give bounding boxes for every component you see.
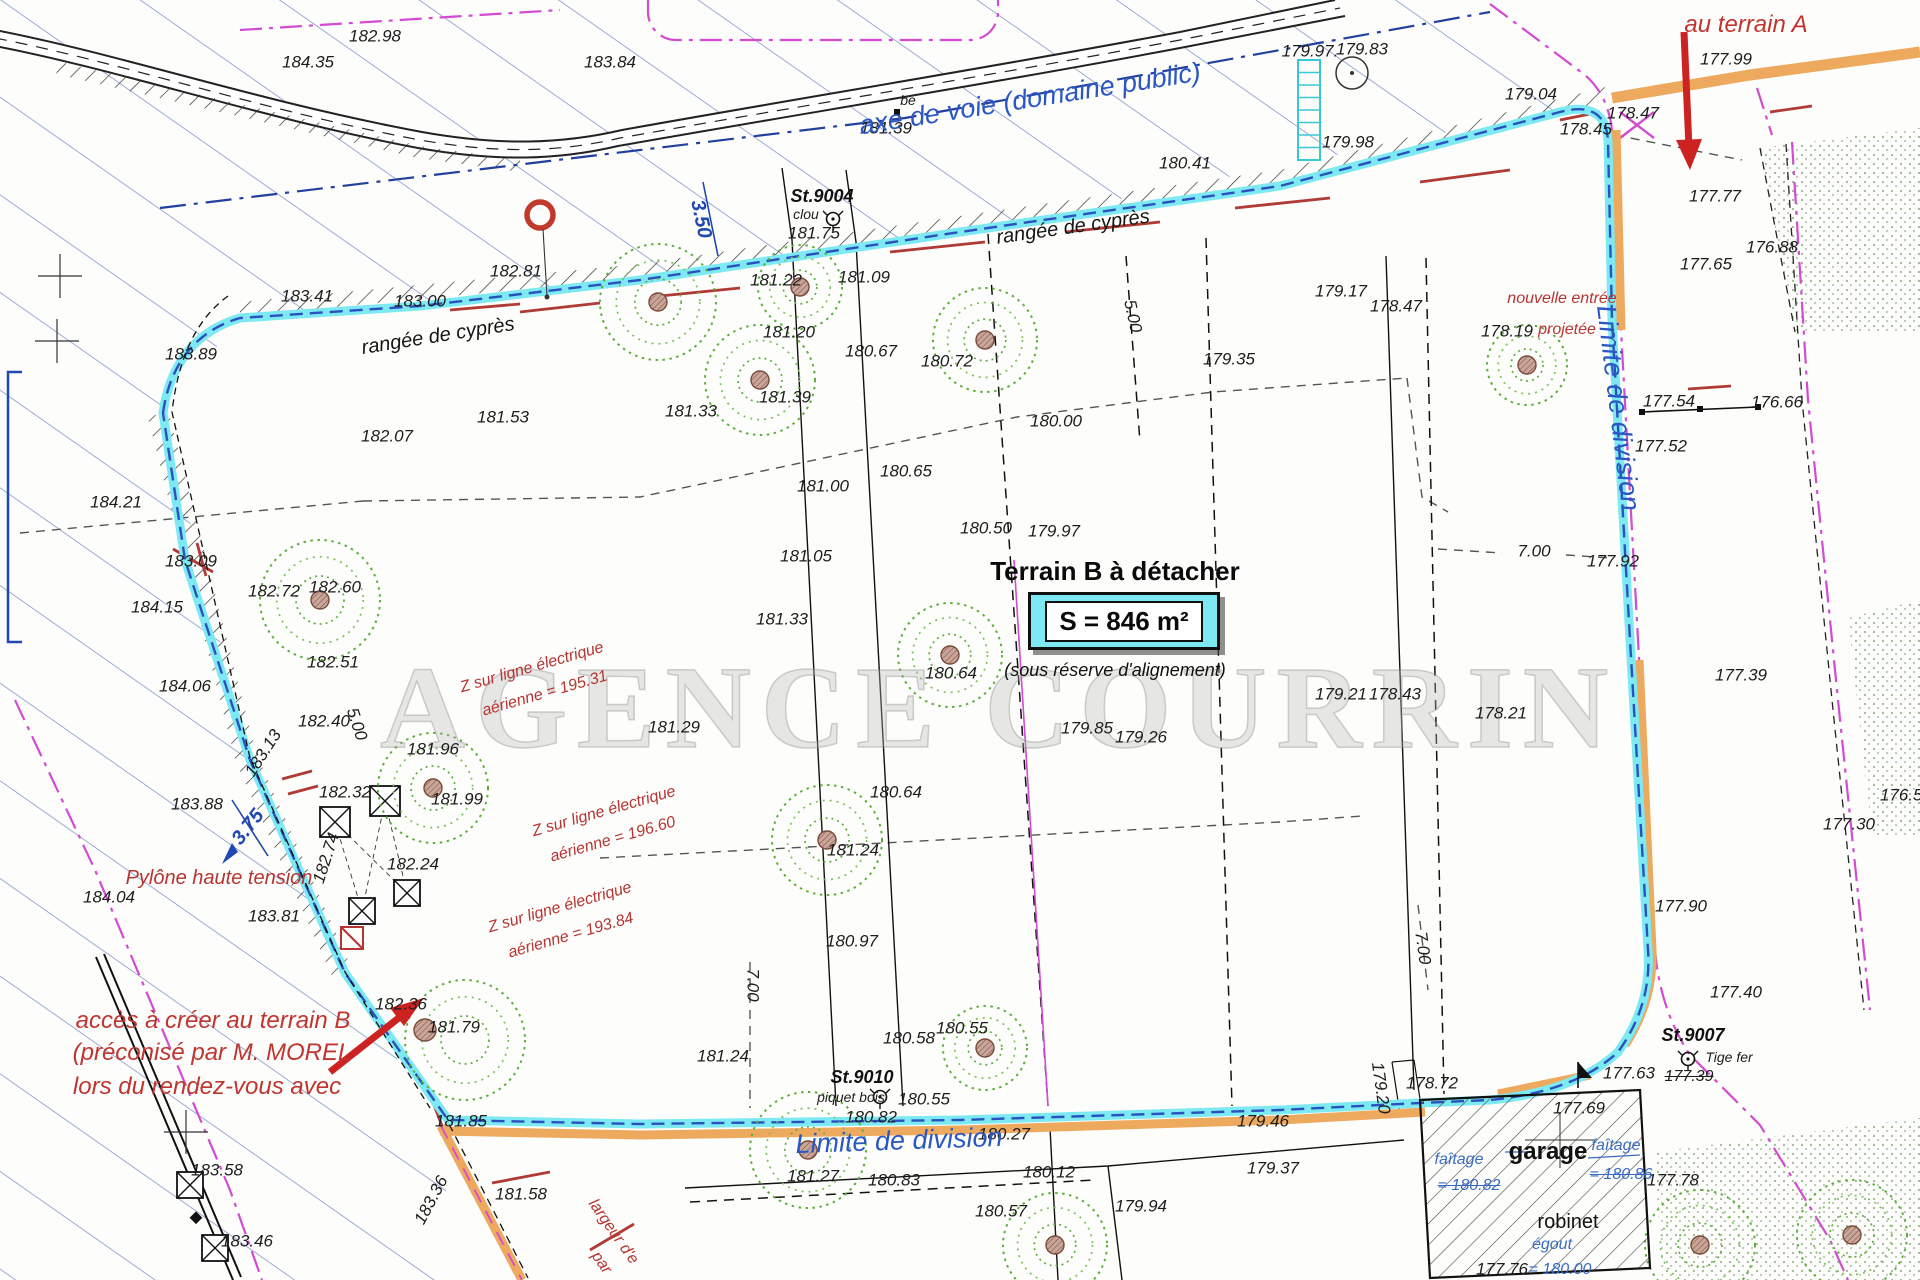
tree-trunk — [311, 591, 329, 609]
red-dash — [1770, 106, 1812, 112]
magenta-cross — [1620, 112, 1654, 138]
be-point — [894, 109, 900, 115]
station-icon — [831, 217, 834, 220]
vegetation-zone — [1848, 600, 1920, 835]
station-icon — [878, 1095, 881, 1098]
tie-point — [1755, 404, 1761, 410]
tree-trunk — [1843, 1226, 1861, 1244]
parcel-title: Terrain B à détacher — [950, 556, 1280, 587]
tree-trunk — [1691, 1236, 1709, 1254]
contour-dashed — [1438, 549, 1502, 553]
red-dash — [1235, 198, 1330, 208]
red-arrow-head — [1676, 139, 1702, 170]
red-dash — [288, 786, 318, 794]
orange-boundary — [1612, 52, 1920, 98]
tree-trunk — [1046, 1236, 1064, 1254]
vegetation-zone — [1760, 128, 1920, 332]
parcel-line — [1050, 1128, 1058, 1280]
tree-trunk — [799, 1141, 817, 1159]
tree-trunk — [424, 779, 442, 797]
red-dash — [1688, 386, 1731, 389]
contour-dashed — [1566, 555, 1610, 558]
alignment-note: (sous réserve d'alignement) — [950, 660, 1280, 681]
parcel-line — [782, 168, 836, 1106]
red-dash — [660, 288, 740, 296]
parcel-line-dashed — [1126, 256, 1140, 442]
tree-trunk — [976, 1039, 994, 1057]
contour-dashed — [1615, 135, 1742, 160]
garage-building — [1420, 1090, 1650, 1278]
parcel-line-dashed — [690, 1180, 1095, 1202]
tree-trunk — [751, 371, 769, 389]
tree-trunk — [414, 1019, 436, 1041]
contour-dashed — [1418, 905, 1428, 990]
red-dash — [1420, 170, 1510, 182]
tie-point — [1697, 406, 1703, 412]
survey-plan: AGENCE COURRIN 184.35183.84182.98183.411… — [0, 0, 1920, 1280]
red-dash — [520, 303, 600, 312]
orange-boundary — [1616, 130, 1621, 330]
magenta-dashdot — [1757, 88, 1772, 135]
circle-marker — [1350, 71, 1354, 75]
tree-trunk — [818, 831, 836, 849]
tree-trunk — [1518, 356, 1536, 374]
red-dash — [492, 1172, 550, 1183]
parcel-line — [1108, 1166, 1122, 1280]
tie-point — [1639, 409, 1645, 415]
leader-point — [545, 295, 550, 300]
pylon-icon-red — [341, 927, 363, 949]
tree-trunk — [791, 278, 809, 296]
vegetation-zone — [1655, 1118, 1920, 1280]
contour-dashed — [1407, 378, 1448, 512]
red-dash — [282, 771, 312, 779]
area-box: S = 846 m² — [1028, 592, 1220, 650]
red-arrow — [1684, 32, 1689, 148]
parcel-line — [685, 1140, 1404, 1188]
tree-trunk — [649, 293, 667, 311]
contour-dashed — [600, 816, 1362, 858]
station-icon — [1686, 1057, 1689, 1060]
parcel-line — [846, 170, 903, 1106]
tree-trunk — [976, 331, 994, 349]
red-dash — [590, 1224, 634, 1250]
tree — [441, 1016, 489, 1064]
contour-dashed — [363, 378, 1407, 501]
area-value: S = 846 m² — [1045, 601, 1202, 642]
red-dash — [1065, 222, 1160, 232]
tree — [422, 997, 508, 1083]
